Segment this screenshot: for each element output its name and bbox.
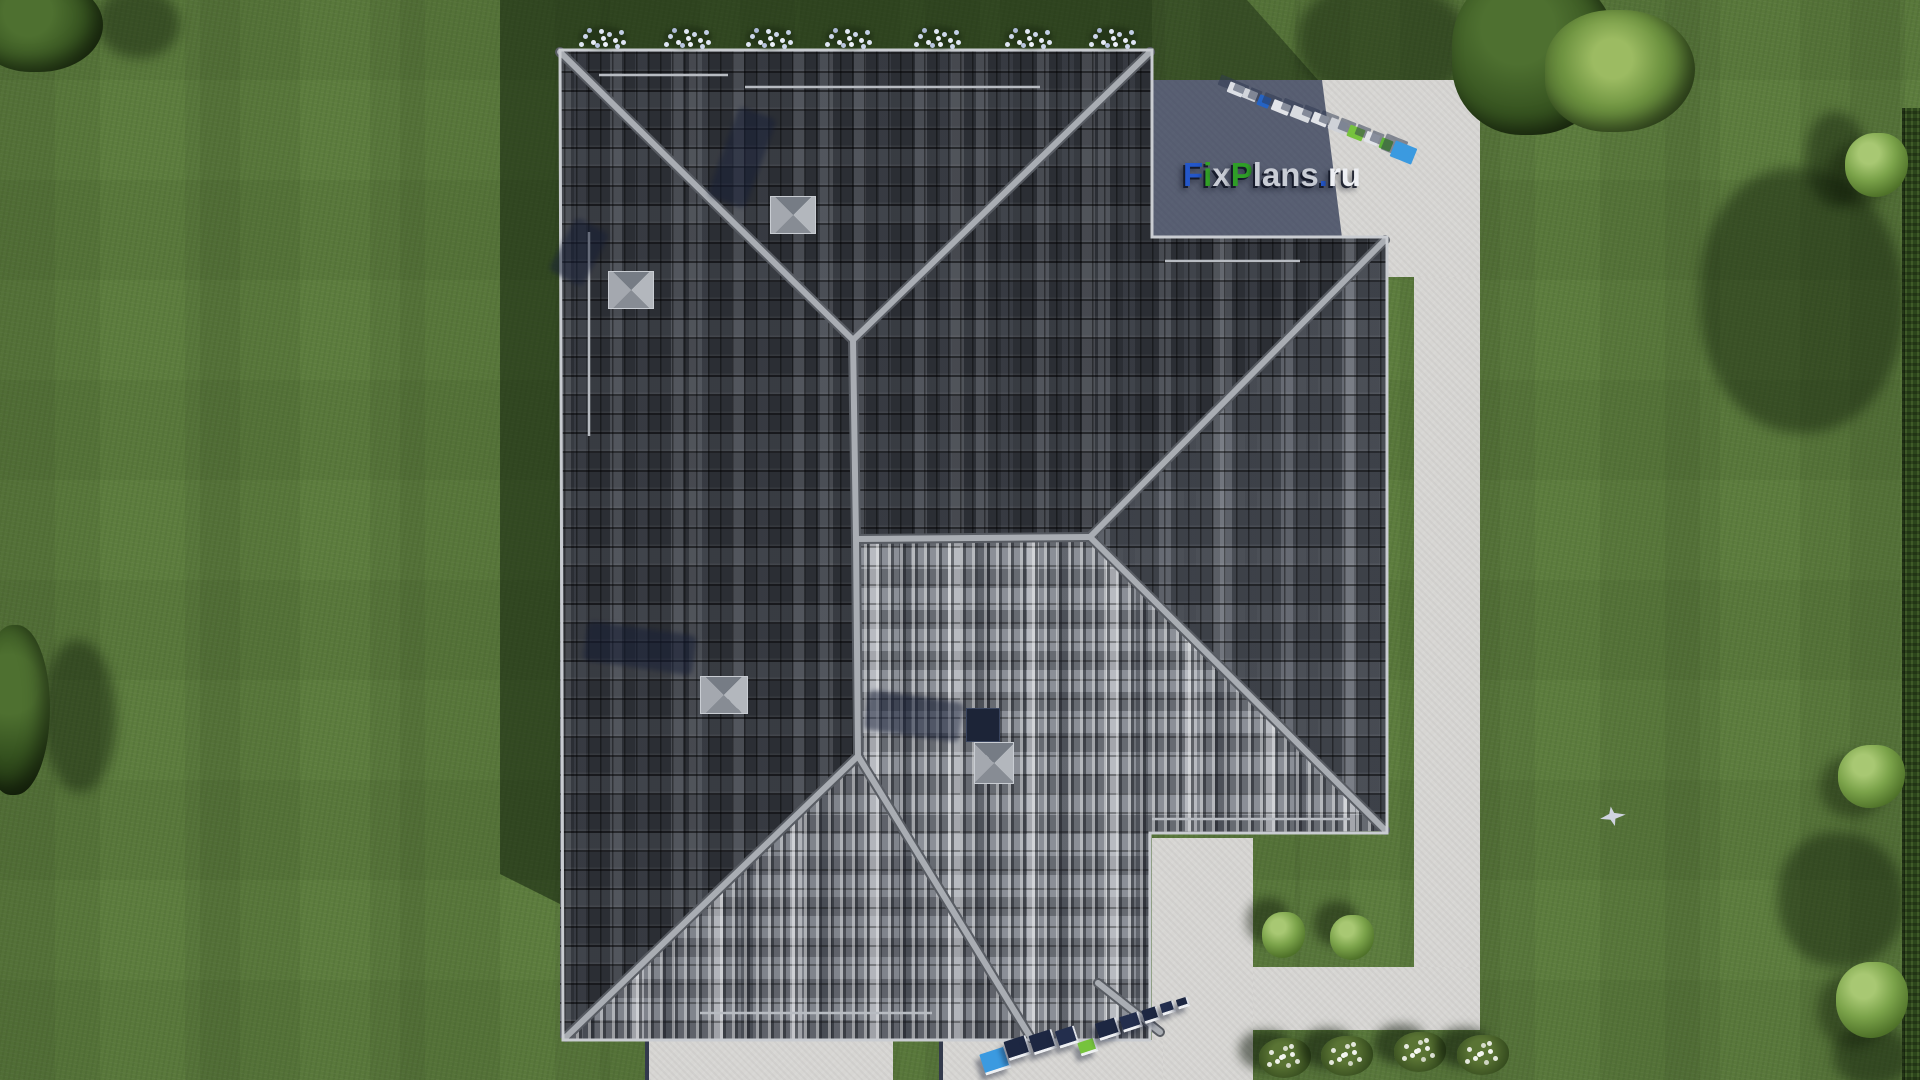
wm-seg-p: P (1231, 156, 1253, 193)
flower-cluster (1003, 24, 1055, 50)
wm-seg-f: F (1183, 156, 1203, 193)
wm-seg-dot: . (1319, 156, 1328, 193)
flower-cluster (1087, 24, 1139, 50)
flower-cluster (662, 24, 714, 50)
chimney-4-cap (974, 742, 1014, 784)
pavement-patch (1152, 838, 1253, 1080)
walkway-bottom (1253, 967, 1480, 1030)
paver-slab-1 (645, 1040, 893, 1080)
wm-seg-lans: lans (1253, 156, 1319, 193)
hedge-right-edge (1902, 108, 1920, 1080)
tree-shadow (1778, 832, 1905, 967)
wm-seg-i: i (1203, 156, 1212, 193)
chimney-2 (608, 271, 654, 309)
aerial-house-render: FixPlans.ru (0, 0, 1920, 1080)
flower-cluster (912, 24, 964, 50)
flower-cluster (577, 24, 629, 50)
flower-cluster (744, 24, 796, 50)
chimney-4-flue (966, 708, 1000, 742)
chimney-3 (700, 676, 748, 714)
wm-seg-ru: ru (1328, 156, 1361, 193)
paver-slab-2 (939, 1040, 1163, 1080)
walkway-right (1414, 277, 1480, 1030)
tree-shadow (44, 640, 116, 792)
chimney-1 (770, 196, 816, 234)
flower-cluster (823, 24, 875, 50)
wm-seg-x: x (1212, 156, 1230, 193)
watermark-text: FixPlans.ru (1183, 156, 1361, 194)
